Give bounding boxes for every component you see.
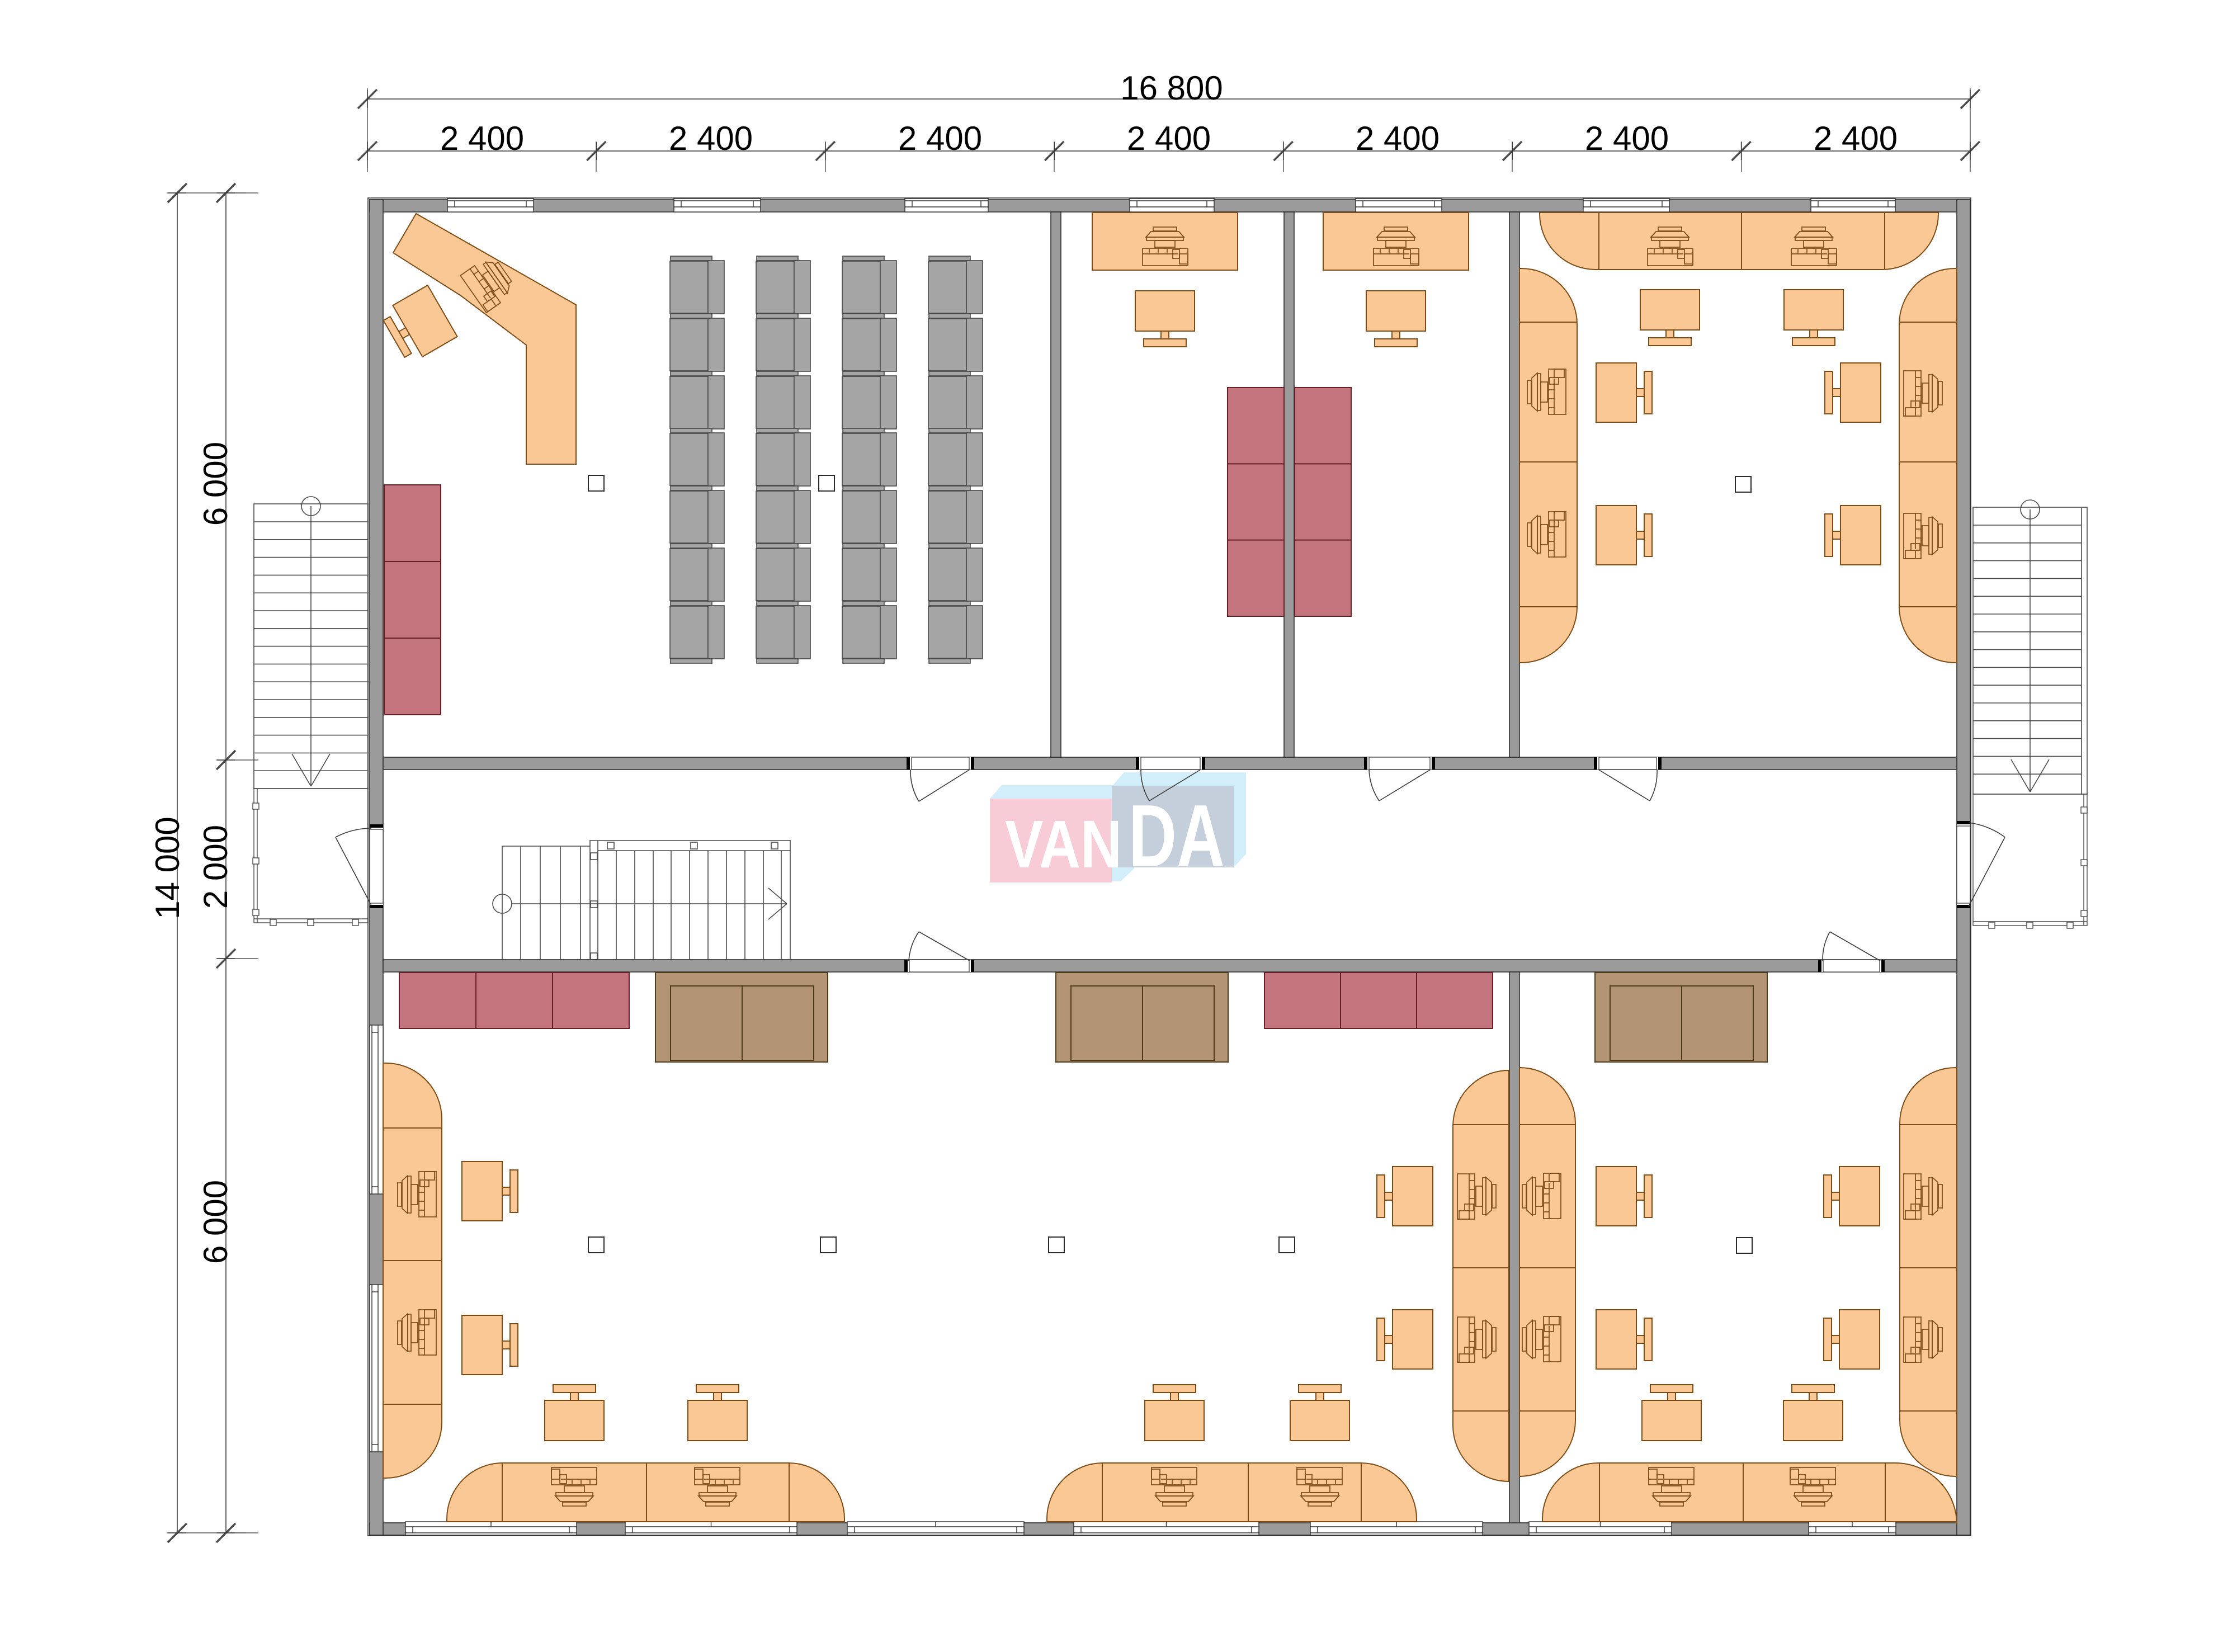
svg-text:2 400: 2 400 [898,120,982,157]
svg-text:14 000: 14 000 [149,816,186,919]
svg-text:2 400: 2 400 [669,120,753,157]
svg-text:6 000: 6 000 [197,1180,234,1264]
svg-text:6 000: 6 000 [197,442,234,526]
svg-text:2 400: 2 400 [1356,120,1440,157]
svg-text:16 800: 16 800 [1120,69,1223,107]
svg-text:2 400: 2 400 [1814,120,1898,157]
svg-text:2 000: 2 000 [197,825,234,909]
svg-text:VAN: VAN [1005,806,1122,882]
svg-text:DA: DA [1129,787,1225,885]
svg-text:2 400: 2 400 [440,120,524,157]
svg-text:2 400: 2 400 [1585,120,1669,157]
svg-text:2 400: 2 400 [1127,120,1211,157]
